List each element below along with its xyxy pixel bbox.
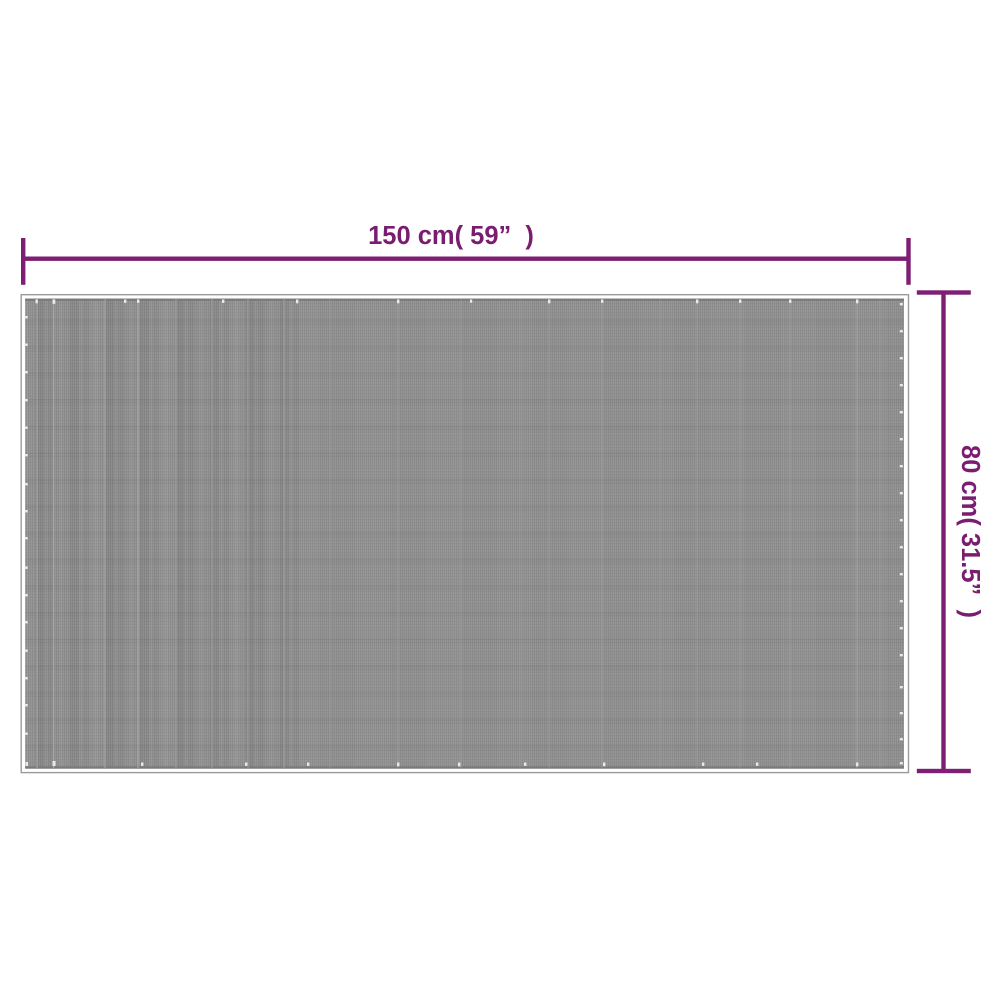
svg-text:80 cm( 31.5” ): 80 cm( 31.5” ) (956, 445, 984, 618)
svg-text:150 cm( 59” ): 150 cm( 59” ) (368, 222, 534, 250)
